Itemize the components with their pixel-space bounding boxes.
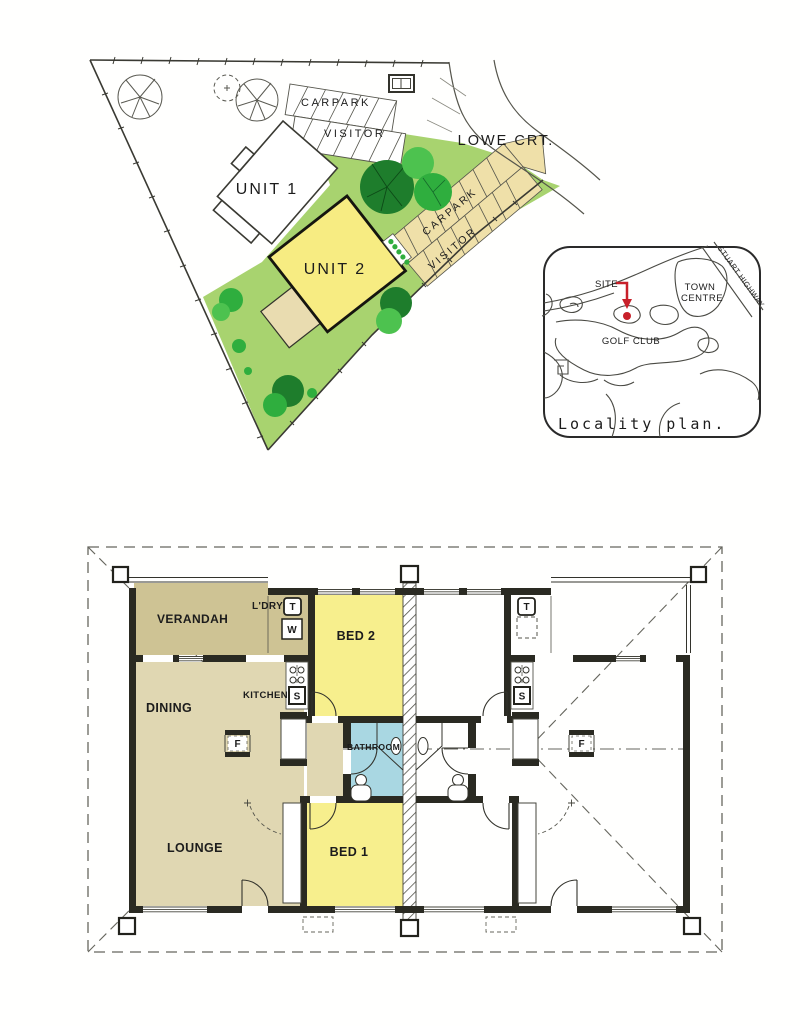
lounge-label: LOUNGE bbox=[167, 841, 223, 855]
fridge-right: F bbox=[578, 739, 584, 750]
top-visitor-label: VISITOR bbox=[324, 128, 385, 140]
trough-right: T bbox=[523, 602, 529, 613]
site-plan: CARPARK VISITOR CARPARK VISITOR bbox=[90, 57, 600, 450]
town-centre-label-1: TOWN bbox=[685, 282, 716, 293]
golf-club-label: GOLF CLUB bbox=[602, 336, 660, 347]
party-wall bbox=[403, 583, 416, 922]
kitchen-label: KITCHEN bbox=[243, 690, 288, 701]
street-label: LOWE CRT. bbox=[458, 133, 555, 149]
fridge-left: F bbox=[234, 739, 240, 750]
dining-label: DINING bbox=[146, 701, 192, 715]
locality-plan: SITE TOWN CENTRE STUART HIGHWAY GOLF CLU… bbox=[542, 242, 766, 437]
washer-left: W bbox=[287, 625, 297, 636]
floor-plan: VERANDAH L'DRY BED 2 DINING KITCHEN BATH… bbox=[88, 547, 722, 952]
sink-left: S bbox=[294, 692, 301, 703]
top-centre-pier bbox=[401, 566, 418, 582]
bed1-label: BED 1 bbox=[330, 845, 369, 859]
outline-trees bbox=[118, 75, 278, 121]
unit2-label: UNIT 2 bbox=[304, 261, 366, 278]
locality-caption: Locality plan. bbox=[558, 415, 726, 433]
sink-right: S bbox=[519, 692, 526, 703]
drawing-canvas: CARPARK VISITOR CARPARK VISITOR bbox=[0, 0, 800, 1026]
unit1-label: UNIT 1 bbox=[236, 181, 298, 198]
laundry-label: L'DRY bbox=[252, 601, 283, 612]
trough-left: T bbox=[289, 602, 295, 613]
bottom-centre-pier bbox=[401, 920, 418, 936]
town-centre-label-2: CENTRE bbox=[681, 293, 723, 304]
right-unit-extras bbox=[517, 585, 691, 653]
bathroom-label: BATHROOM bbox=[347, 742, 400, 752]
architectural-drawing-sheet: CARPARK VISITOR CARPARK VISITOR bbox=[0, 0, 800, 1026]
site-label: SITE bbox=[595, 279, 618, 290]
verandah-label: VERANDAH bbox=[157, 612, 228, 626]
top-carpark-label: CARPARK bbox=[301, 97, 371, 109]
bin-store bbox=[389, 75, 414, 92]
bed2-label: BED 2 bbox=[337, 629, 376, 643]
